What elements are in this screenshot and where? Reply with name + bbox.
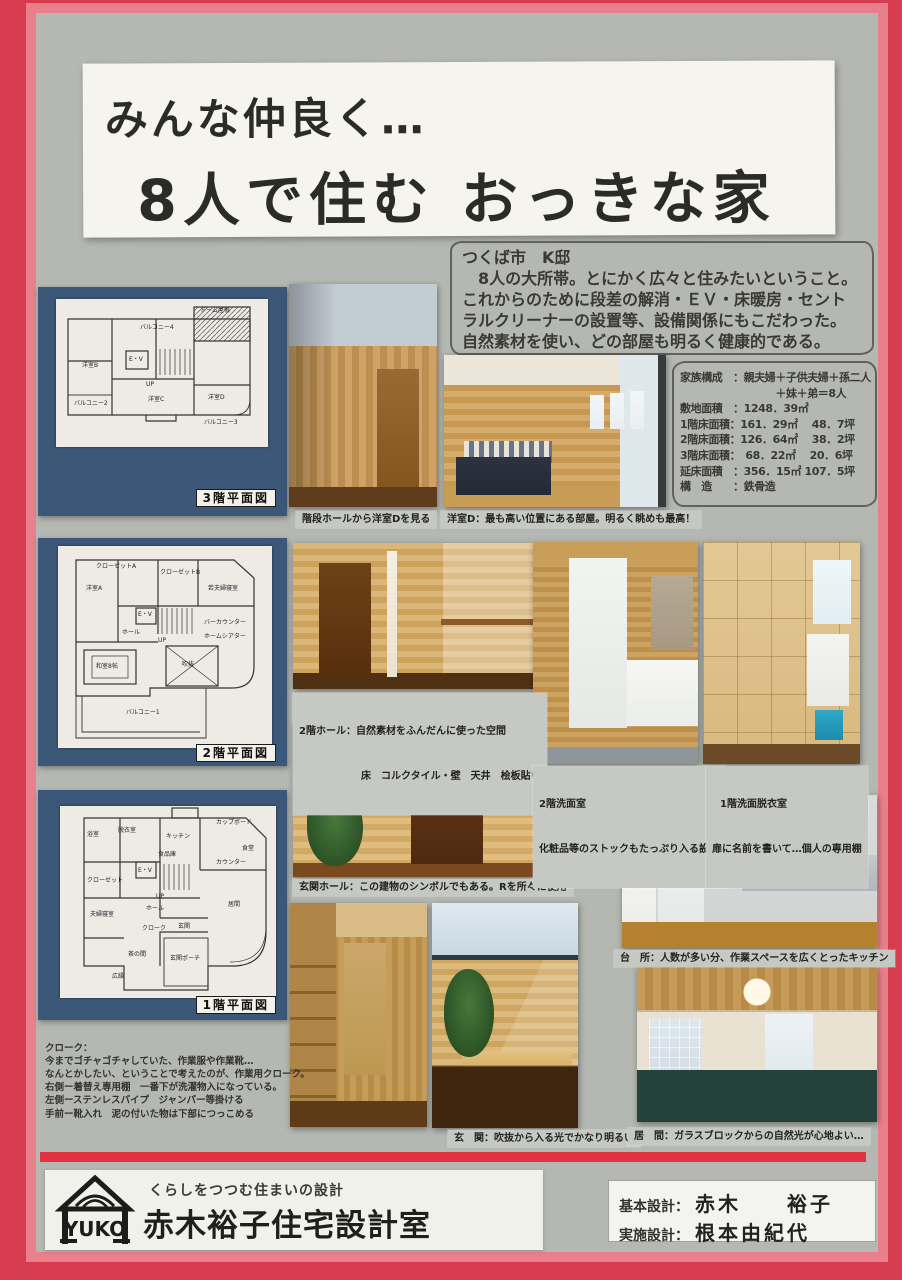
- credit-row: 基本設計： 赤木 裕子: [619, 1188, 865, 1217]
- yuko-house-logo-icon: YUKO: [53, 1173, 137, 1247]
- room-label: 吹抜: [182, 662, 194, 668]
- room-label: バルコニー3: [204, 420, 238, 426]
- note-line: なんとかしたい、ということで考えたのが、作業用クローク。: [45, 1068, 307, 1081]
- caption-line: 床 コルクタイル・壁 天井 桧板貼り: [299, 769, 541, 784]
- spec-row: 家族構成 ：親夫婦＋子供夫婦＋孫二人: [680, 370, 869, 386]
- room-label: クローゼット: [87, 878, 123, 884]
- floorplan-label-1f: 1階平面図: [196, 996, 276, 1014]
- photo-2f-washroom: [533, 542, 698, 764]
- room-label: 洋室C: [148, 397, 164, 403]
- credit-label: 基本設計：: [619, 1196, 689, 1216]
- caption-kitchen: 台 所：人数が多い分、作業スペースを広くとったキッチン: [614, 950, 895, 967]
- credit-label: 実施設計：: [619, 1225, 689, 1245]
- spec-row: ＋妹＋弟＝8人: [680, 386, 869, 402]
- note-line: 左側ーステンレスパイプ ジャンパー等掛ける: [45, 1094, 307, 1107]
- caption-living-room: 居 間：ガラスブロックからの自然光が心地よい…: [628, 1128, 870, 1145]
- floorplan-drawing-2f: クローゼットA 洋室A クローゼットB 若夫婦寝室 E・V UP ホール バーカ…: [58, 546, 272, 748]
- caption-stair-hall: 階段ホールから洋室Dを見る: [296, 511, 436, 528]
- company-name: 赤木裕子住宅設計室: [143, 1200, 431, 1245]
- caption-line: 扉に名前を書いて…個人の専用棚: [712, 842, 862, 857]
- floorplan-panel-3f: ドーム屋根 バルコニー4 洋室B E・V UP 洋室C 洋室D バルコニー2 バ…: [38, 287, 287, 516]
- intro-box: つくば市 K邸 8人の大所帯。とにかく広々と住みたいということ。 これからのため…: [450, 241, 874, 355]
- photo-cloakroom: [290, 903, 427, 1127]
- spec-row: 2階床面積：126．64㎡ 38．2坪: [680, 432, 869, 448]
- caption-line: 2階洗面室: [539, 797, 719, 812]
- caption-line: 1階洗面脱衣室: [712, 797, 862, 812]
- photo-entrance: [432, 903, 578, 1128]
- note-line: 今までゴチャゴチャしていた、作業服や作業靴…: [45, 1055, 307, 1068]
- title-line2: 8人で住む おっきな家: [137, 153, 776, 238]
- room-label: カウンター: [216, 860, 246, 866]
- room-label: UP: [156, 894, 164, 900]
- room-label: クローク: [142, 926, 166, 932]
- room-label: UP: [158, 638, 166, 644]
- room-label: 洋室A: [86, 586, 102, 592]
- room-label: UP: [146, 382, 154, 388]
- room-label: E・V: [138, 612, 152, 618]
- room-label: ホール: [146, 906, 164, 912]
- room-label: 居間: [228, 902, 240, 908]
- room-label: バルコニー1: [126, 710, 160, 716]
- intro-line: 自然素材を使い、どの部屋も明るく健康的である。: [462, 331, 862, 352]
- room-label: 和室8帖: [96, 664, 118, 670]
- floorplan-panel-1f: 浴室 脱衣室 キッチン カップボード 食堂 カウンター 食品庫 E・V UP ホ…: [38, 790, 287, 1020]
- caption-line: 2階ホール：自然素材をふんだんに使った空間: [299, 724, 541, 739]
- room-label: 若夫婦寝室: [208, 586, 238, 592]
- room-label: カップボード: [216, 820, 252, 826]
- floorplan-drawing-3f: ドーム屋根 バルコニー4 洋室B E・V UP 洋室C 洋室D バルコニー2 バ…: [56, 299, 268, 447]
- room-label: ホームシアター: [204, 634, 246, 640]
- caption-entrance-hall: 玄関ホール：この建物のシンボルでもある。Rを所々に使用: [293, 879, 573, 896]
- spec-row: 構 造 ：鉄骨造: [680, 479, 869, 495]
- room-label: 夫婦寝室: [90, 912, 114, 918]
- intro-line: ラルクリーナーの設置等、設備関係にもこだわった。: [462, 310, 862, 331]
- title-line1: みんな仲良く…: [105, 84, 427, 147]
- caption-1f-washroom: 1階洗面脱衣室 扉に名前を書いて…個人の専用棚: [706, 766, 868, 888]
- note-line: 手前ー靴入れ 泥の付いた物は下部につっこめる: [45, 1108, 307, 1121]
- room-label: E・V: [129, 357, 143, 363]
- photo-stair-hall: [289, 284, 437, 507]
- photo-1f-washroom: [703, 542, 860, 764]
- floorplan-panel-2f: クローゼットA 洋室A クローゼットB 若夫婦寝室 E・V UP ホール バーカ…: [38, 538, 287, 766]
- room-label: バーカウンター: [204, 620, 246, 626]
- cloakroom-note: クローク： 今までゴチャゴチャしていた、作業服や作業靴… なんとかしたい、という…: [45, 1042, 307, 1121]
- room-label: ドーム屋根: [200, 308, 230, 314]
- room-label: バルコニー4: [140, 325, 174, 331]
- credit-row: 実施設計： 根本由紀代: [619, 1217, 865, 1246]
- room-label: 広縁: [112, 974, 124, 980]
- note-line: 右側ー着替え専用棚 一番下が洗濯物入になっている。: [45, 1081, 307, 1094]
- design-credits-box: 基本設計： 赤木 裕子 実施設計： 根本由紀代: [608, 1180, 876, 1242]
- intro-location: つくば市 K邸: [462, 247, 862, 268]
- footer-divider-bar: [40, 1152, 866, 1162]
- note-line: クローク：: [45, 1042, 307, 1055]
- room-label: バルコニー2: [74, 401, 108, 407]
- caption-line: 化粧品等のストックもたっぷり入る設計: [539, 842, 719, 857]
- room-label: 洋室D: [208, 395, 225, 401]
- spec-row: 延床面積 ：356．15㎡ 107．5坪: [680, 464, 869, 480]
- intro-line: 8人の大所帯。とにかく広々と住みたいということ。: [462, 268, 862, 289]
- photo-living-room: [637, 966, 877, 1122]
- caption-2f-washroom: 2階洗面室 化粧品等のストックもたっぷり入る設計: [533, 766, 725, 888]
- floorplan-label-2f: 2階平面図: [196, 744, 276, 762]
- room-label: 浴室: [87, 832, 99, 838]
- room-label: 食品庫: [158, 852, 176, 858]
- floorplan-2f-svg: [58, 546, 272, 748]
- intro-line: これからのために段差の解消・ＥＶ・床暖房・セント: [462, 289, 862, 310]
- spec-row: 1階床面積：161．29㎡ 48．7坪: [680, 417, 869, 433]
- room-label: クローゼットA: [96, 564, 136, 570]
- floorplan-drawing-1f: 浴室 脱衣室 キッチン カップボード 食堂 カウンター 食品庫 E・V UP ホ…: [60, 806, 276, 998]
- spec-row: 3階床面積： 68．22㎡ 20．6坪: [680, 448, 869, 464]
- room-label: 洋室B: [82, 363, 98, 369]
- floorplan-label-3f: 3階平面図: [196, 489, 276, 507]
- poster: みんな仲良く… 8人で住む おっきな家 つくば市 K邸 8人の大所帯。とにかく広…: [0, 0, 902, 1280]
- photo-bedroom-d: [444, 355, 666, 507]
- logo-tagline: くらしをつつむ住まいの設計: [149, 1180, 344, 1200]
- room-label: 玄関: [178, 924, 190, 930]
- room-label: 玄関ポーチ: [170, 956, 200, 962]
- spec-box: 家族構成 ：親夫婦＋子供夫婦＋孫二人 ＋妹＋弟＝8人 敷地面積 ：1248．39…: [672, 361, 877, 507]
- room-label: クローゼットB: [160, 570, 200, 576]
- credit-name: 根本由紀代: [695, 1217, 810, 1246]
- room-label: ホール: [122, 630, 140, 636]
- spec-row: 敷地面積 ：1248．39㎡: [680, 401, 869, 417]
- room-label: 茶の間: [128, 952, 146, 958]
- architect-logo-box: YUKO くらしをつつむ住まいの設計 赤木裕子住宅設計室: [45, 1170, 543, 1250]
- photo-2f-hall: [293, 543, 533, 689]
- title-banner: みんな仲良く… 8人で住む おっきな家: [83, 60, 836, 237]
- logo-text: YUKO: [63, 1217, 126, 1241]
- caption-entrance: 玄 関：吹抜から入る光でかなり明るい: [448, 1130, 640, 1147]
- room-label: E・V: [138, 868, 152, 874]
- caption-bedroom-d: 洋室D：最も高い位置にある部屋。明るく眺めも最高！: [441, 511, 701, 528]
- caption-2f-hall: 2階ホール：自然素材をふんだんに使った空間 床 コルクタイル・壁 天井 桧板貼り: [293, 693, 547, 815]
- credit-name: 赤木 裕子: [695, 1188, 833, 1217]
- room-label: キッチン: [166, 834, 190, 840]
- room-label: 食堂: [242, 846, 254, 852]
- room-label: 脱衣室: [118, 828, 136, 834]
